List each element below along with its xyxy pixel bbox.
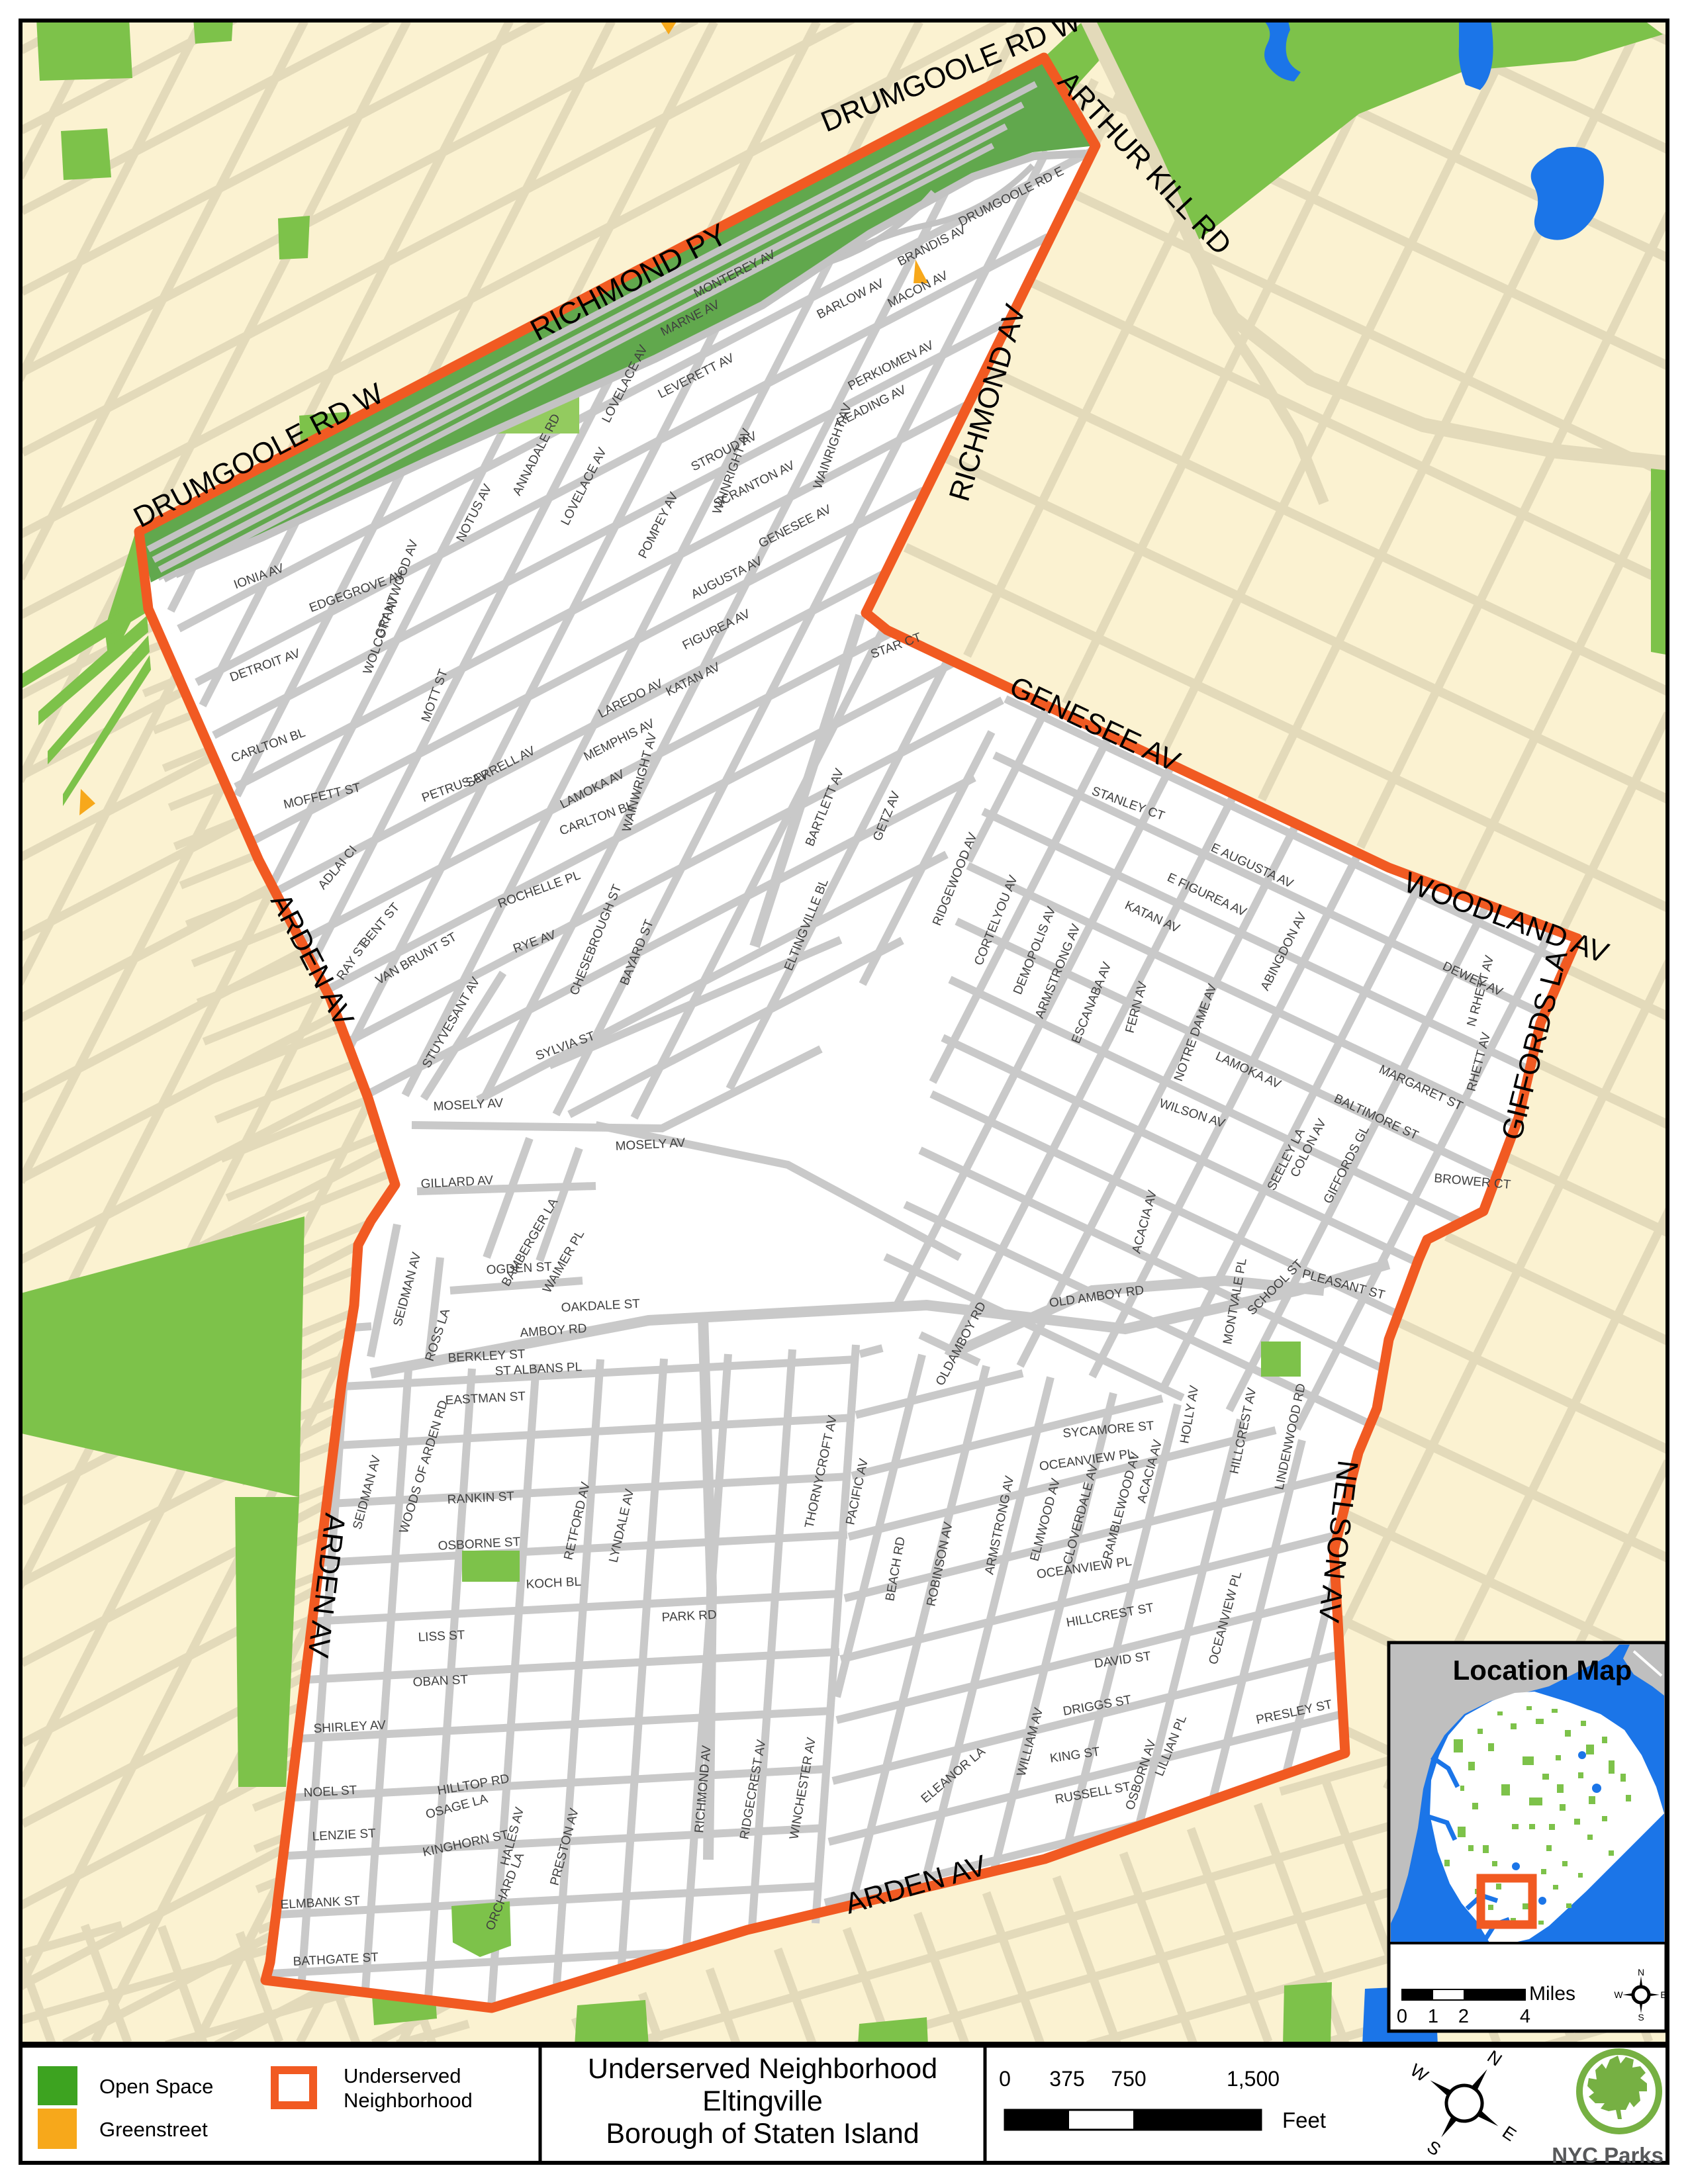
svg-text:Location Map: Location Map: [1453, 1655, 1632, 1686]
svg-text:PARK RD: PARK RD: [661, 1608, 717, 1625]
svg-text:0: 0: [1397, 2006, 1407, 2027]
svg-text:Feet: Feet: [1282, 2108, 1326, 2132]
svg-text:KOCH BL: KOCH BL: [526, 1575, 581, 1592]
svg-text:Eltingville: Eltingville: [702, 2085, 823, 2117]
svg-text:N: N: [1638, 1967, 1644, 1978]
svg-text:E: E: [1660, 1989, 1666, 2000]
svg-text:2: 2: [1458, 2006, 1469, 2027]
svg-text:LISS ST: LISS ST: [418, 1628, 465, 1645]
svg-text:Greenstreet: Greenstreet: [99, 2118, 208, 2141]
svg-text:Miles: Miles: [1529, 1983, 1575, 2005]
svg-text:W: W: [1614, 1989, 1623, 2000]
svg-text:NYC Parks: NYC Parks: [1552, 2143, 1664, 2167]
svg-text:Open Space: Open Space: [99, 2075, 213, 2098]
svg-text:1: 1: [1428, 2006, 1438, 2027]
svg-text:Underserved Neighborhood: Underserved Neighborhood: [588, 2053, 937, 2085]
svg-text:375: 375: [1049, 2067, 1084, 2091]
svg-text:S: S: [1638, 2012, 1644, 2023]
svg-text:1,500: 1,500: [1227, 2067, 1280, 2091]
svg-text:Neighborhood: Neighborhood: [344, 2089, 473, 2112]
svg-text:750: 750: [1111, 2067, 1146, 2091]
svg-text:4: 4: [1520, 2006, 1530, 2027]
svg-text:Borough of Staten Island: Borough of Staten Island: [606, 2118, 919, 2150]
svg-text:0: 0: [999, 2067, 1011, 2091]
svg-text:NOEL ST: NOEL ST: [303, 1784, 357, 1800]
svg-text:Underserved: Underserved: [344, 2064, 461, 2087]
svg-text:OBAN ST: OBAN ST: [412, 1673, 469, 1690]
